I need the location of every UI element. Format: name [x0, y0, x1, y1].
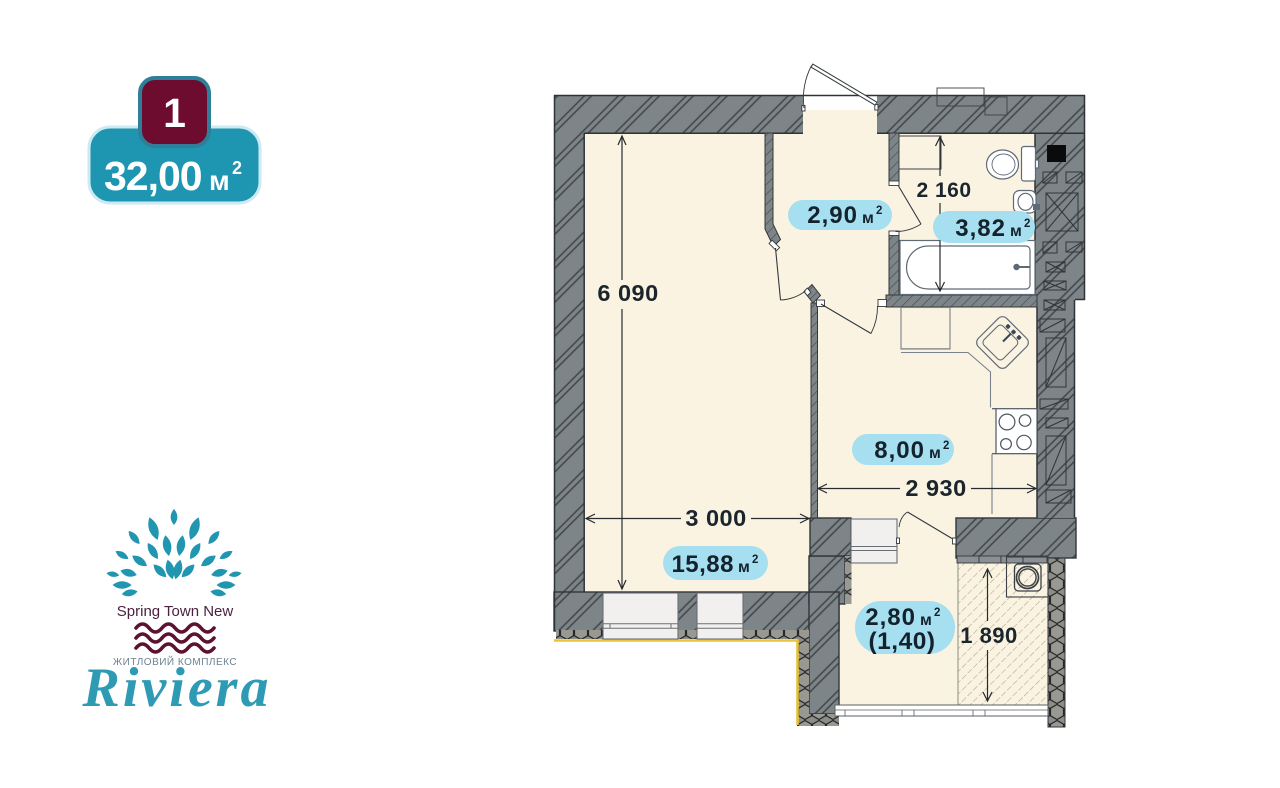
svg-text:Riviera: Riviera — [82, 657, 272, 719]
svg-text:2: 2 — [876, 205, 882, 217]
svg-text:(1,40): (1,40) — [868, 628, 935, 655]
svg-text:м: м — [1010, 223, 1022, 240]
svg-text:м: м — [920, 612, 932, 629]
svg-text:1: 1 — [163, 90, 186, 136]
svg-text:2,80: 2,80 — [865, 604, 916, 631]
svg-text:2: 2 — [943, 440, 949, 452]
svg-text:32,00: 32,00 — [104, 153, 202, 199]
svg-text:6 090: 6 090 — [597, 280, 658, 306]
svg-text:м: м — [738, 559, 750, 576]
svg-text:2: 2 — [752, 554, 758, 566]
svg-text:2: 2 — [1024, 218, 1030, 230]
svg-text:3,82: 3,82 — [955, 215, 1006, 242]
svg-text:м: м — [929, 445, 941, 462]
svg-text:2: 2 — [232, 158, 242, 178]
svg-text:Spring Town New: Spring Town New — [117, 603, 234, 620]
svg-text:15,88: 15,88 — [671, 551, 734, 578]
svg-text:3 000: 3 000 — [685, 505, 746, 531]
svg-text:8,00: 8,00 — [874, 437, 925, 464]
svg-text:м: м — [209, 165, 230, 196]
svg-text:2 160: 2 160 — [916, 179, 971, 202]
svg-text:2: 2 — [934, 607, 940, 619]
svg-text:м: м — [862, 210, 874, 227]
svg-text:2 930: 2 930 — [905, 475, 966, 501]
svg-text:1 890: 1 890 — [960, 623, 1018, 648]
svg-text:2,90: 2,90 — [807, 202, 858, 229]
